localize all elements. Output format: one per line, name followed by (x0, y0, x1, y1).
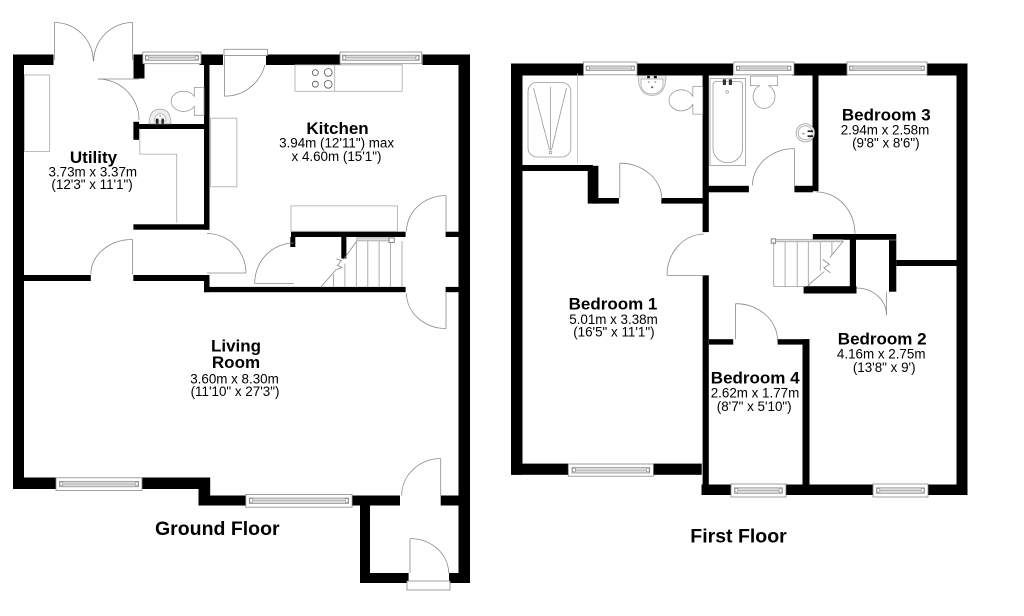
svg-text:Room: Room (212, 353, 260, 372)
svg-text:Ground Floor: Ground Floor (155, 518, 280, 540)
svg-text:(13'8" x 9'): (13'8" x 9') (853, 360, 916, 375)
svg-text:(16'5" x 11'1"): (16'5" x 11'1") (573, 324, 654, 339)
svg-text:(12'3" x 11'1"): (12'3" x 11'1") (51, 177, 132, 192)
svg-text:(9'8" x 8'6"): (9'8" x 8'6") (852, 136, 919, 151)
svg-text:Bedroom 1: Bedroom 1 (569, 294, 658, 313)
svg-text:(8'7" x 5'10"): (8'7" x 5'10") (717, 399, 792, 414)
svg-text:x 4.60m (15'1"): x 4.60m (15'1") (292, 149, 382, 164)
svg-text:First Floor: First Floor (690, 526, 787, 548)
svg-text:(11'10" x 27'3"): (11'10" x 27'3") (191, 384, 280, 399)
